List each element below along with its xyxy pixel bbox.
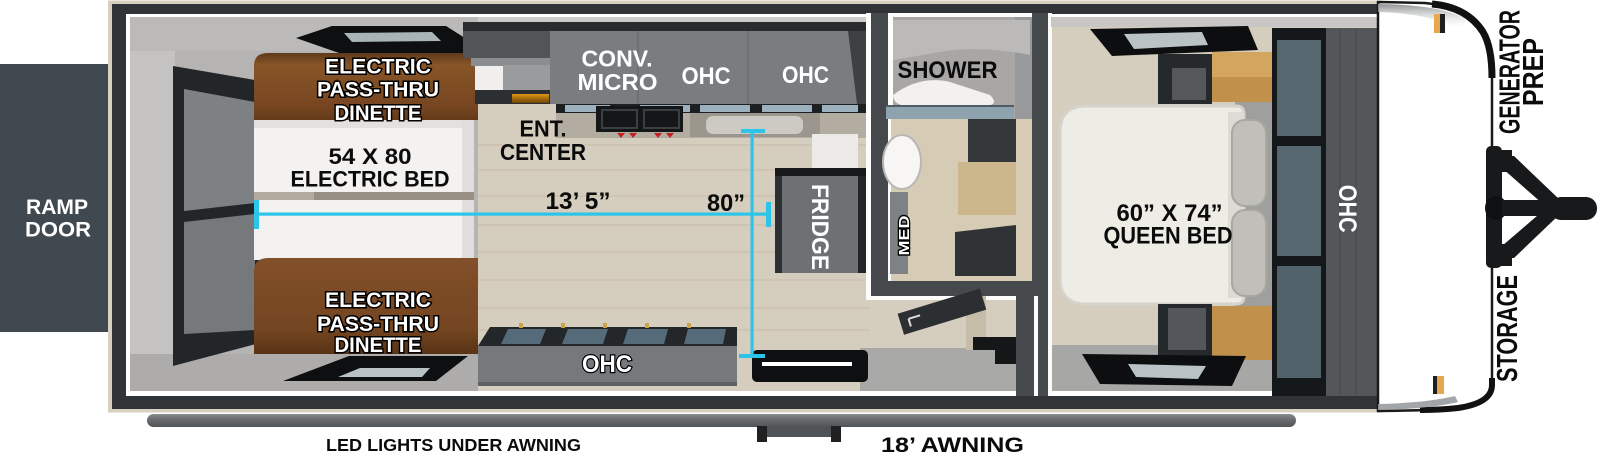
svg-text:STORAGE: STORAGE: [1492, 275, 1524, 382]
svg-text:FRIDGE: FRIDGE: [806, 184, 833, 270]
svg-text:PASS-THRU: PASS-THRU: [317, 79, 439, 102]
svg-text:ELECTRIC: ELECTRIC: [325, 56, 431, 79]
svg-text:MED: MED: [896, 215, 913, 255]
svg-text:ENT.: ENT.: [520, 116, 567, 142]
svg-text:DINETTE: DINETTE: [335, 334, 422, 357]
svg-text:54 X 80: 54 X 80: [329, 144, 412, 169]
svg-text:18’ AWNING: 18’ AWNING: [881, 434, 1024, 455]
svg-text:PREP: PREP: [1518, 38, 1550, 106]
svg-text:DOOR: DOOR: [25, 218, 91, 242]
svg-text:ELECTRIC BED: ELECTRIC BED: [291, 167, 450, 192]
svg-text:CONV.: CONV.: [582, 46, 653, 72]
svg-text:DINETTE: DINETTE: [335, 102, 422, 125]
svg-text:80”: 80”: [707, 190, 745, 217]
svg-text:OHC: OHC: [1333, 185, 1361, 233]
svg-text:OHC: OHC: [582, 351, 632, 378]
svg-text:13’ 5”: 13’ 5”: [546, 188, 611, 215]
svg-text:OHC: OHC: [782, 62, 829, 89]
svg-text:CENTER: CENTER: [500, 139, 586, 165]
svg-text:LED LIGHTS UNDER AWNING: LED LIGHTS UNDER AWNING: [326, 435, 581, 455]
svg-text:SHOWER: SHOWER: [898, 57, 998, 84]
svg-text:OHC: OHC: [682, 63, 731, 90]
svg-text:PASS-THRU: PASS-THRU: [317, 313, 439, 336]
svg-text:MICRO: MICRO: [578, 69, 658, 95]
svg-text:RAMP: RAMP: [26, 195, 88, 219]
svg-text:QUEEN BED: QUEEN BED: [1104, 223, 1233, 250]
svg-text:ELECTRIC: ELECTRIC: [325, 289, 431, 312]
